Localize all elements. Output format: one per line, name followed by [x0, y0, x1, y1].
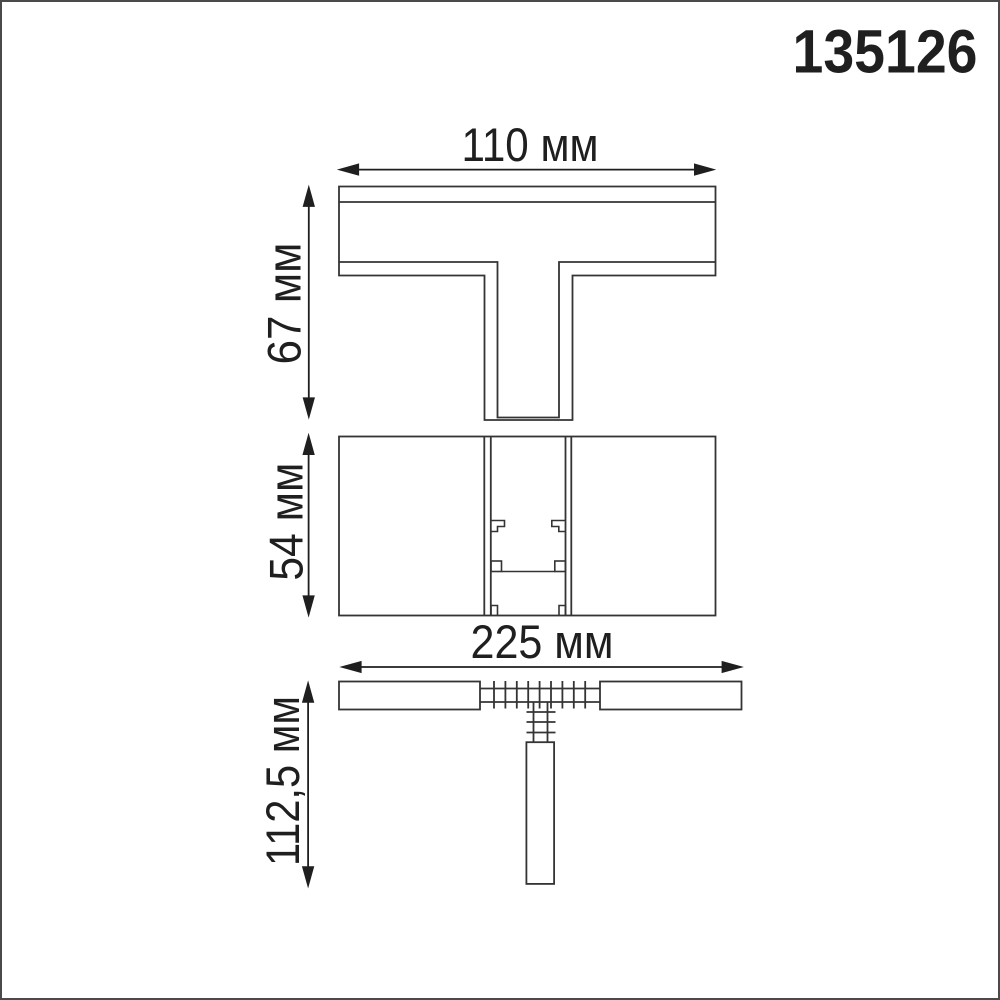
svg-text:225 мм: 225 мм — [471, 615, 614, 668]
svg-text:135126: 135126 — [793, 18, 978, 86]
svg-text:67 мм: 67 мм — [258, 243, 311, 365]
svg-text:54 мм: 54 мм — [260, 463, 313, 581]
svg-text:112,5 мм: 112,5 мм — [256, 696, 309, 866]
svg-text:110 мм: 110 мм — [462, 118, 599, 171]
